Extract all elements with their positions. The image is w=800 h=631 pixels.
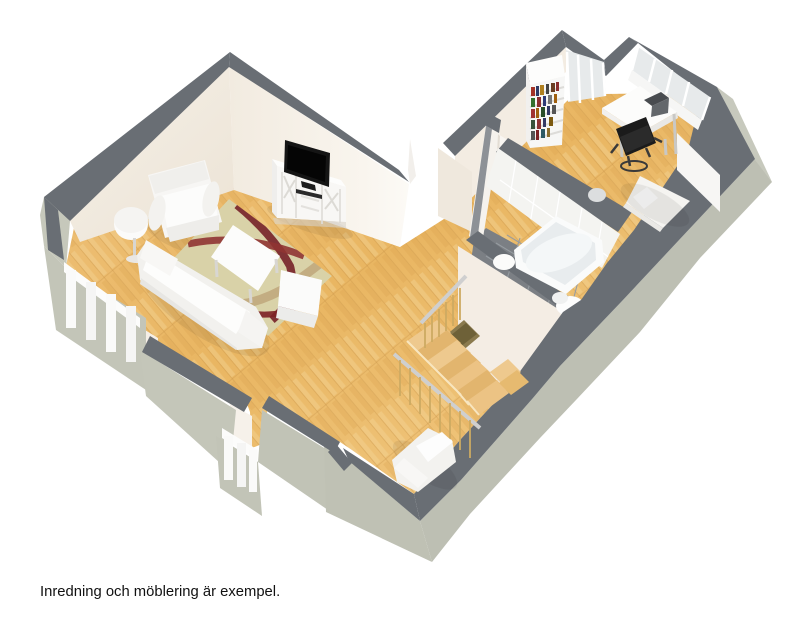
svg-text:Inredning och möblering är exe: Inredning och möblering är exempel. [40, 584, 280, 600]
